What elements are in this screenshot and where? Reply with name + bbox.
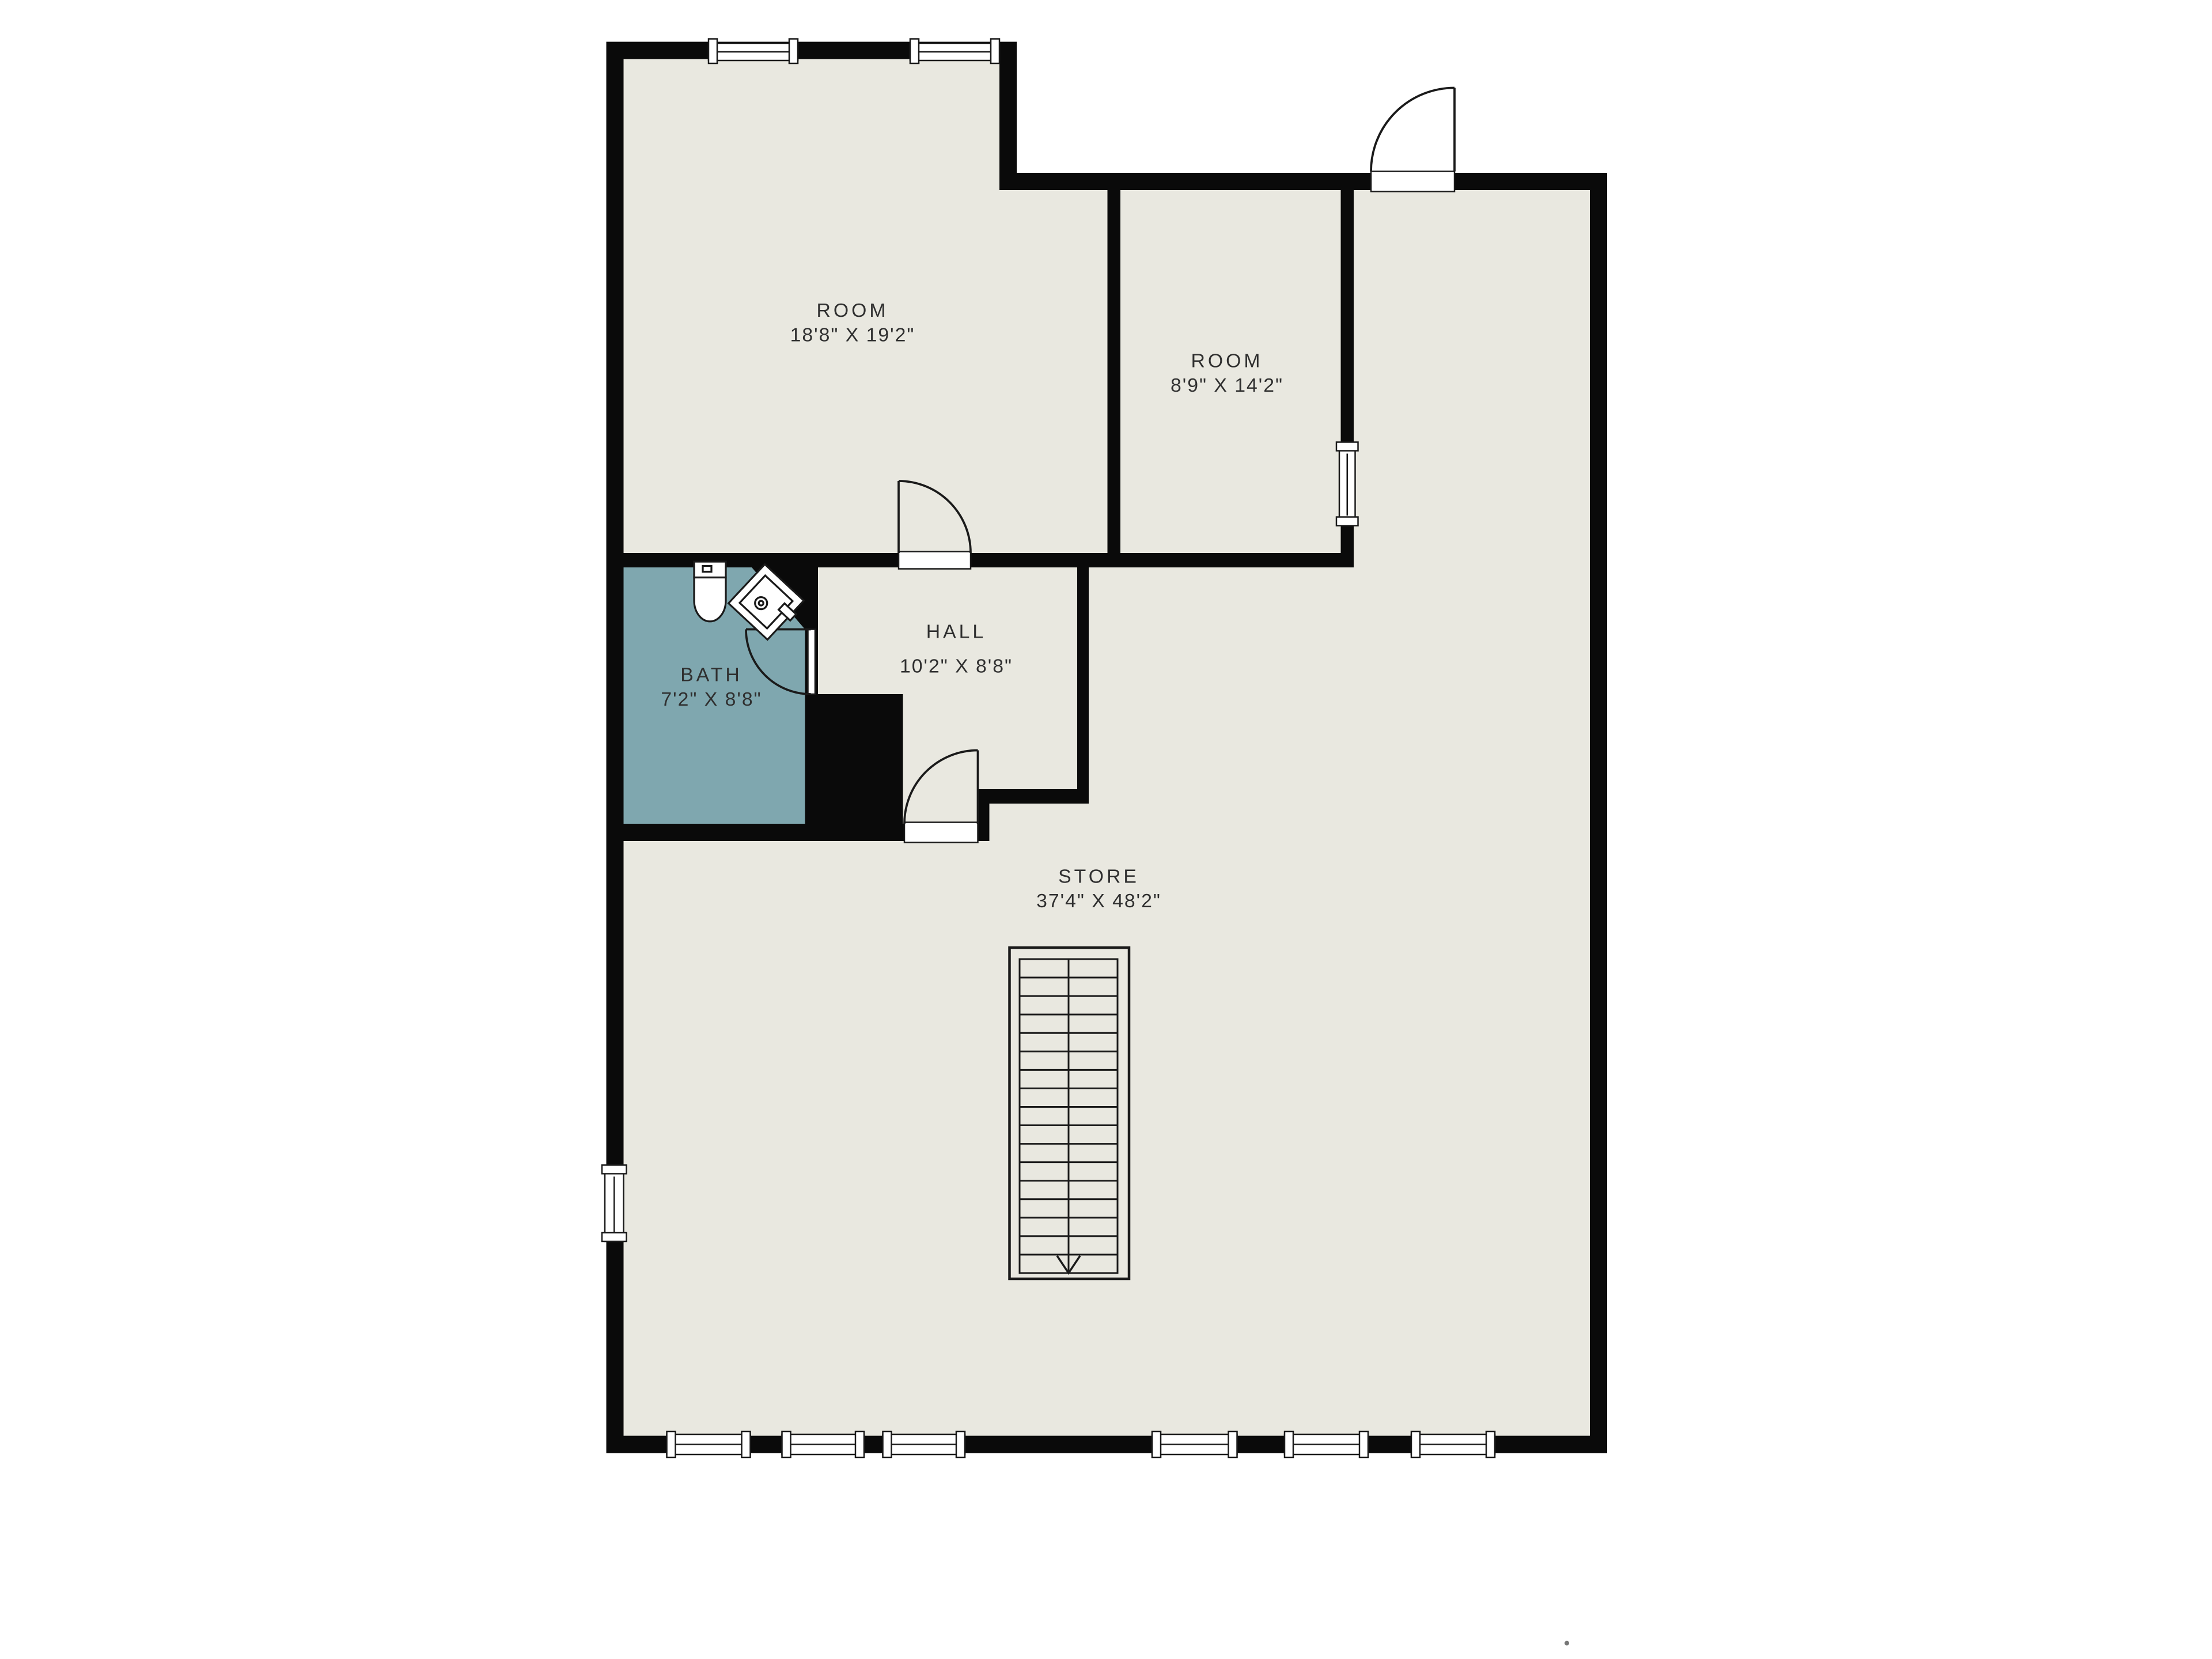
window-room2 — [1336, 442, 1358, 526]
room1-label: ROOM — [817, 300, 889, 321]
wall-hall-south — [984, 789, 1078, 804]
room2-dims: 8'9" X 14'2" — [1171, 374, 1283, 396]
window-bottom-5 — [1285, 1431, 1368, 1457]
entry-door-arc — [1371, 88, 1455, 172]
wall-right — [1590, 173, 1607, 1453]
wall-room2-left — [1108, 190, 1121, 567]
toilet-icon — [694, 562, 726, 622]
store-label: STORE — [1058, 866, 1139, 888]
window-top-2 — [910, 39, 999, 64]
bath-label: BATH — [680, 664, 743, 686]
wall-step-vertical — [999, 42, 1017, 191]
floor-plan: ROOM 18'8" X 19'2" ROOM 8'9" X 14'2" HAL… — [0, 0, 2212, 1659]
store-dims: 37'4" X 48'2" — [1036, 890, 1161, 912]
room2-label: ROOM — [1191, 350, 1263, 372]
bath-dims: 7'2" X 8'8" — [661, 688, 762, 710]
entry-door — [1371, 88, 1455, 172]
hall-label: HALL — [926, 621, 986, 643]
wall-step-horizontal — [999, 173, 1607, 190]
window-bottom-1 — [667, 1431, 751, 1457]
hall-dims: 10'2" X 8'8" — [900, 656, 1013, 677]
hall-door-opening — [904, 823, 978, 843]
room1-dims: 18'8" X 19'2" — [790, 324, 915, 346]
window-bottom-4 — [1152, 1431, 1237, 1457]
bath-door-opening — [808, 630, 816, 695]
window-bottom-2 — [782, 1431, 865, 1457]
window-top-1 — [709, 39, 798, 64]
room1-door-opening — [899, 552, 971, 569]
wall-hall-right — [1077, 553, 1089, 804]
page-dot — [1565, 1641, 1569, 1646]
window-bottom-3 — [883, 1431, 965, 1457]
window-bottom-6 — [1411, 1431, 1495, 1457]
wall-hall-block — [805, 694, 903, 841]
window-left — [602, 1165, 627, 1242]
entry-door-opening — [1371, 172, 1455, 192]
